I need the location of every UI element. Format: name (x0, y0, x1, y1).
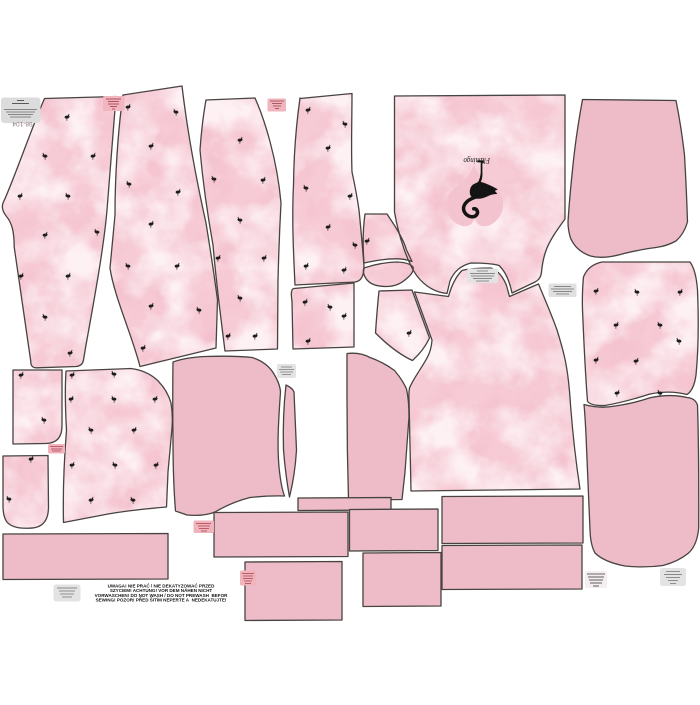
svg-text:SEWING! POZOR! PŘED ŠITÍM NEPE: SEWING! POZOR! PŘED ŠITÍM NEPERTE A NEDE… (96, 596, 227, 603)
svg-text:98-104: 98-104 (12, 120, 33, 127)
svg-text:Flamingo: Flamingo (464, 156, 491, 165)
